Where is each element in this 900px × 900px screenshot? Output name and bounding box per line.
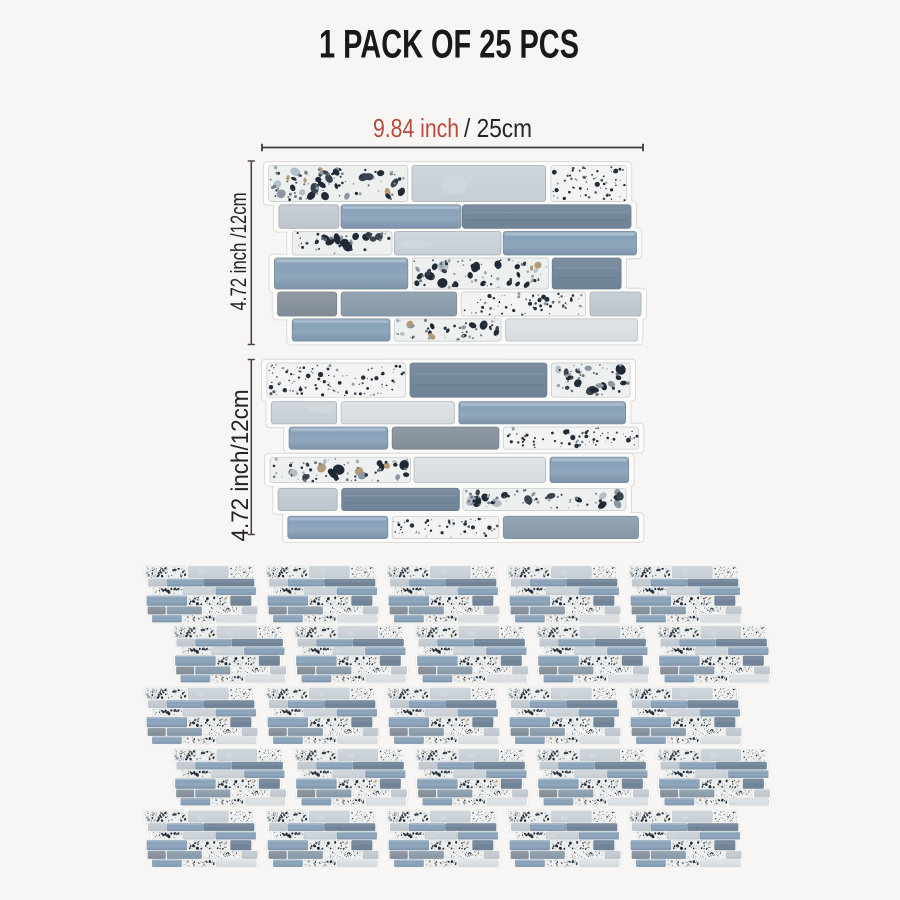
svg-text:1 PACK OF 25 PCS: 1 PACK OF 25 PCS	[319, 23, 579, 67]
svg-text:9.84 inch: 9.84 inch	[373, 113, 459, 143]
svg-text:4.72 inch /12cm: 4.72 inch /12cm	[226, 193, 251, 311]
svg-text:4.72 inch/12cm: 4.72 inch/12cm	[227, 390, 254, 542]
svg-text:/ 25cm: / 25cm	[464, 113, 532, 143]
